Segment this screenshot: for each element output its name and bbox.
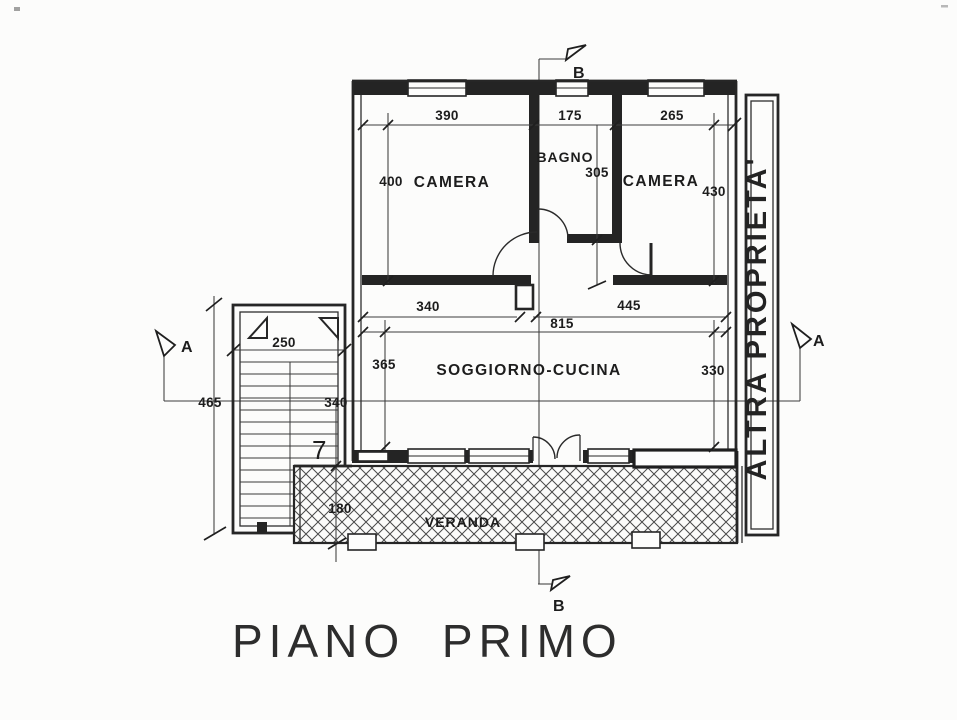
section-marker-b-top: B	[573, 65, 585, 82]
dim-soggiorno-left-width: 340	[416, 299, 439, 314]
dim-camera-left-depth: 400	[379, 174, 402, 189]
dim-camera-right-width: 265	[660, 108, 684, 123]
stair-note: 7	[312, 435, 326, 465]
adjacent-property-strip: ALTRA PROPRIETA'	[741, 95, 778, 535]
section-marker-a-right: A	[813, 333, 825, 350]
dim-camera-left-width: 390	[435, 108, 458, 123]
sliding-window	[634, 450, 736, 467]
section-marker-b-bottom: B	[553, 598, 565, 615]
dim-veranda-depth: 180	[328, 501, 351, 516]
bagno-right-wall	[612, 95, 622, 243]
window	[408, 449, 629, 463]
room-soggiorno: SOGGIORNO-CUCINA	[436, 362, 621, 379]
veranda-post	[516, 534, 544, 550]
dim-landing-width: 340	[324, 395, 347, 410]
main-wall-right	[613, 275, 727, 285]
room-veranda: VERANDA	[425, 514, 501, 530]
section-marker-a-left: A	[181, 339, 193, 356]
veranda-post	[632, 532, 660, 548]
dim-camera-right-depth: 430	[702, 184, 725, 199]
floor-plan-drawing: ALTRA PROPRIETA' 390 1	[0, 0, 957, 720]
room-bagno: BAGNO	[536, 149, 593, 165]
dim-bagno-depth: 305	[585, 165, 609, 180]
page-title: PIANO PRIMO	[232, 615, 623, 667]
pillar	[516, 285, 533, 309]
dim-soggiorno-right-width: 445	[617, 298, 641, 313]
floor-plan-sheet: ALTRA PROPRIETA' 390 1	[0, 0, 957, 720]
adjacent-property-label: ALTRA PROPRIETA'	[741, 155, 773, 480]
main-wall-left	[362, 275, 531, 285]
dim-soggiorno-left-depth: 365	[372, 357, 396, 372]
veranda-hatch	[294, 466, 737, 543]
dim-soggiorno-right-depth: 330	[701, 363, 724, 378]
room-camera-left: CAMERA	[414, 174, 490, 191]
dim-bagno-width: 175	[558, 108, 582, 123]
dim-soggiorno-total-width: 815	[550, 316, 574, 331]
room-camera-right: CAMERA	[623, 173, 699, 190]
veranda-post	[348, 534, 376, 550]
paper-background	[0, 0, 957, 720]
dim-stair-width: 250	[272, 335, 295, 350]
dim-stair-length: 465	[198, 395, 222, 410]
